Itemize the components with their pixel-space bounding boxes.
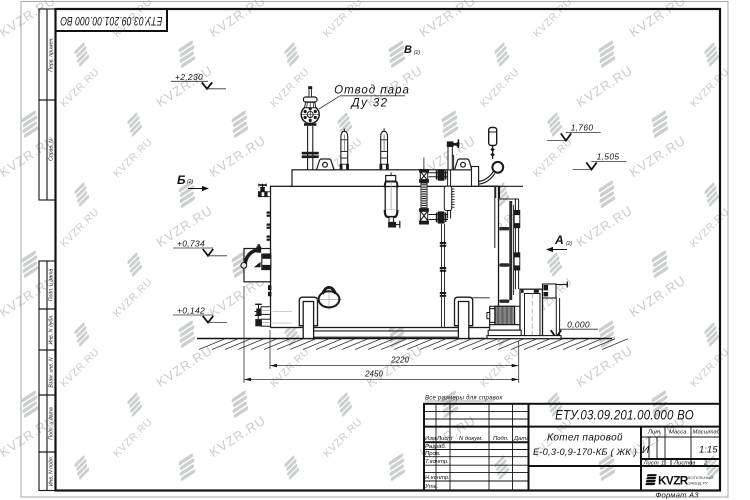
svg-text:1:15: 1:15 bbox=[699, 445, 718, 456]
svg-text:В: В bbox=[404, 44, 412, 56]
svg-text:Масштаб: Масштаб bbox=[693, 430, 721, 436]
svg-text:Изм.: Изм. bbox=[425, 436, 438, 442]
svg-text:Ду 32: Ду 32 bbox=[350, 98, 389, 110]
svg-text:(2): (2) bbox=[187, 179, 193, 185]
svg-text:KVZR: KVZR bbox=[658, 474, 689, 488]
svg-text:ЕТУ.03.09.201.00.000 ВО: ЕТУ.03.09.201.00.000 ВО bbox=[555, 406, 694, 422]
svg-text:1,505: 1,505 bbox=[597, 152, 620, 162]
svg-text:Т.контр.: Т.контр. bbox=[425, 459, 449, 465]
svg-text:ЗАВОД.РУ: ЗАВОД.РУ bbox=[688, 481, 708, 486]
svg-text:0,000: 0,000 bbox=[567, 320, 590, 330]
svg-text:КОТЕЛЬНЫЙ: КОТЕЛЬНЫЙ bbox=[688, 475, 713, 480]
svg-text:N докум.: N докум. bbox=[459, 436, 483, 442]
svg-text:Лист: Лист bbox=[643, 461, 659, 467]
svg-text:1,760: 1,760 bbox=[571, 123, 594, 133]
svg-text:(2): (2) bbox=[414, 50, 420, 56]
svg-text:Разраб.: Разраб. bbox=[425, 444, 446, 450]
svg-text:1: 1 bbox=[661, 461, 664, 467]
svg-text:+2,230: +2,230 bbox=[175, 72, 203, 82]
svg-text:Б: Б bbox=[177, 173, 186, 187]
svg-text:Масса: Масса bbox=[669, 430, 687, 436]
svg-text:Подп. и дата: Подп. и дата bbox=[49, 269, 55, 302]
svg-text:+0,142: +0,142 bbox=[177, 306, 205, 316]
svg-text:Взам. инв. N: Взам. инв. N bbox=[49, 357, 55, 387]
svg-text:Подп.: Подп. bbox=[493, 436, 509, 442]
svg-text:Отвод пара: Отвод пара bbox=[334, 85, 410, 97]
svg-text:2: 2 bbox=[703, 461, 708, 467]
svg-text:И: И bbox=[642, 445, 650, 456]
svg-text:Дата: Дата bbox=[513, 436, 530, 442]
svg-text:Лит.: Лит. bbox=[647, 430, 662, 436]
svg-text:Перв. примен.: Перв. примен. bbox=[49, 37, 55, 71]
svg-text:Н.контр.: Н.контр. bbox=[425, 475, 450, 481]
svg-text:ЕТУ.03.09.201.00.000 ВО: ЕТУ.03.09.201.00.000 ВО bbox=[60, 13, 162, 26]
svg-text:Котел паровой: Котел паровой bbox=[547, 433, 623, 444]
svg-text:Листов: Листов bbox=[673, 461, 695, 467]
svg-text:Все размеры для справок: Все размеры для справок bbox=[425, 395, 504, 402]
svg-text:Справ. N: Справ. N bbox=[49, 139, 55, 161]
svg-text:Е-0,3-0,9-170-КБ ( ЖК ): Е-0,3-0,9-170-КБ ( ЖК ) bbox=[533, 447, 637, 457]
svg-text:2220: 2220 bbox=[390, 356, 409, 365]
svg-text:Формат А3: Формат А3 bbox=[655, 491, 699, 500]
svg-text:Лист: Лист bbox=[436, 436, 452, 442]
svg-text:Инв. N дубл.: Инв. N дубл. bbox=[49, 314, 55, 344]
svg-text:+0,734: +0,734 bbox=[177, 239, 205, 249]
svg-text:Инв. N подл.: Инв. N подл. bbox=[49, 456, 55, 486]
svg-text:2450: 2450 bbox=[364, 369, 383, 378]
svg-text:Утв.: Утв. bbox=[424, 484, 438, 490]
svg-text:А: А bbox=[554, 233, 564, 247]
svg-text:(2): (2) bbox=[566, 241, 572, 247]
svg-text:Пров.: Пров. bbox=[425, 451, 441, 457]
svg-text:Подп. и дата: Подп. и дата bbox=[49, 407, 55, 440]
